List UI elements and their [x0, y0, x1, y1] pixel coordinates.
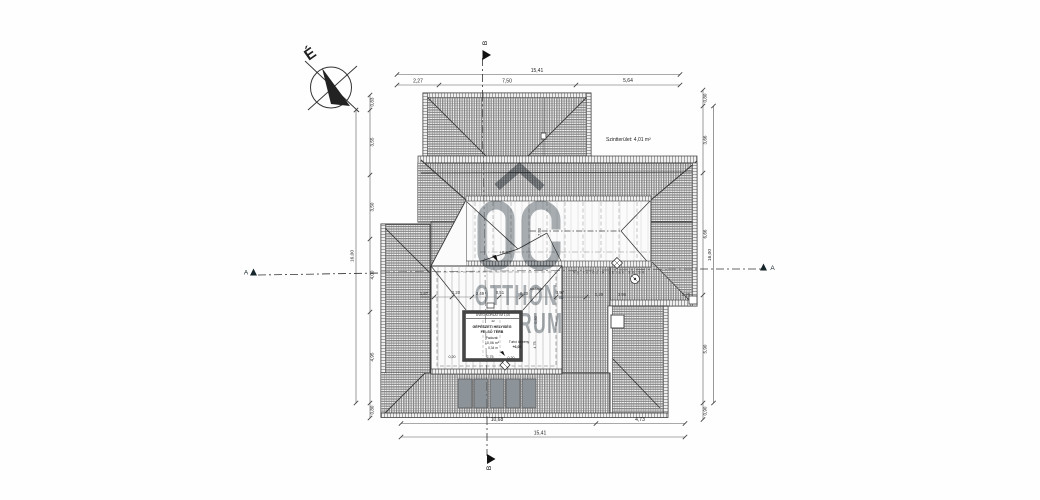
svg-text:0,51: 0,51	[496, 290, 505, 295]
svg-text:0,80: 0,80	[703, 93, 708, 102]
svg-text:A: A	[244, 270, 249, 277]
svg-text:Szintterület: 4,01 m²: Szintterület: 4,01 m²	[606, 137, 651, 143]
svg-text:2,75: 2,75	[487, 355, 494, 359]
svg-text:1,87: 1,87	[420, 291, 429, 296]
svg-text:16,00: 16,00	[350, 250, 356, 262]
svg-text:0,20: 0,20	[520, 291, 529, 296]
svg-text:16,00: 16,00	[707, 249, 713, 261]
svg-text:FELSŐ TÉRB: FELSŐ TÉRB	[481, 329, 504, 334]
svg-text:3,97: 3,97	[556, 290, 565, 295]
svg-text:GÉPÉSZETI HELYISÉG: GÉPÉSZETI HELYISÉG	[472, 324, 511, 329]
svg-text:B: B	[482, 41, 489, 45]
svg-text:5,90: 5,90	[703, 344, 708, 353]
svg-text:42: 42	[491, 319, 495, 323]
svg-text:0,83: 0,83	[370, 97, 375, 106]
svg-text:0,90: 0,90	[703, 406, 708, 415]
svg-text:+6,15: +6,15	[499, 250, 511, 255]
svg-text:4,00: 4,00	[370, 270, 375, 279]
svg-text:0,80: 0,80	[534, 316, 538, 323]
svg-text:15,41: 15,41	[534, 431, 547, 437]
svg-text:4,75: 4,75	[533, 342, 537, 349]
svg-text:7,50: 7,50	[537, 227, 542, 236]
svg-text:2,49: 2,49	[476, 291, 485, 296]
svg-text:0,20: 0,20	[452, 290, 461, 295]
svg-text:10,06 m²: 10,06 m²	[485, 341, 500, 345]
svg-text:Turbó kémény: Turbó kémény	[509, 340, 530, 344]
svg-text:15,41: 15,41	[531, 68, 544, 74]
svg-text:+6,00: +6,00	[512, 345, 521, 349]
svg-text:Ny tetősík ablak 90/90: Ny tetősík ablak 90/90	[573, 271, 644, 275]
svg-text:0,20: 0,20	[508, 356, 515, 360]
svg-text:3,95: 3,95	[618, 292, 627, 297]
svg-text:3,66: 3,66	[703, 135, 708, 144]
svg-text:0,20: 0,20	[682, 292, 691, 297]
svg-text:0,80: 0,80	[370, 405, 375, 414]
svg-text:0,34 m: 0,34 m	[488, 346, 498, 350]
svg-text:6,66: 6,66	[703, 229, 708, 238]
svg-text:2,27: 2,27	[413, 79, 423, 85]
svg-text:4,73: 4,73	[635, 417, 645, 423]
svg-text:10,68: 10,68	[491, 417, 504, 423]
svg-text:0,20: 0,20	[595, 292, 604, 297]
svg-text:Padozat:: Padozat:	[486, 336, 499, 340]
svg-text:7,50: 7,50	[502, 79, 512, 85]
svg-text:A: A	[770, 265, 775, 272]
svg-text:3,55: 3,55	[370, 137, 375, 146]
svg-text:ÜVEG KORLÁT IM 1,00: ÜVEG KORLÁT IM 1,00	[476, 313, 510, 317]
svg-text:B: B	[486, 466, 493, 470]
svg-text:3,50: 3,50	[370, 202, 375, 211]
svg-text:4,95: 4,95	[370, 352, 375, 361]
svg-text:5,64: 5,64	[623, 78, 633, 84]
svg-text:0,20: 0,20	[449, 355, 456, 359]
svg-text:padlásfel.: padlásfel.	[529, 287, 545, 291]
